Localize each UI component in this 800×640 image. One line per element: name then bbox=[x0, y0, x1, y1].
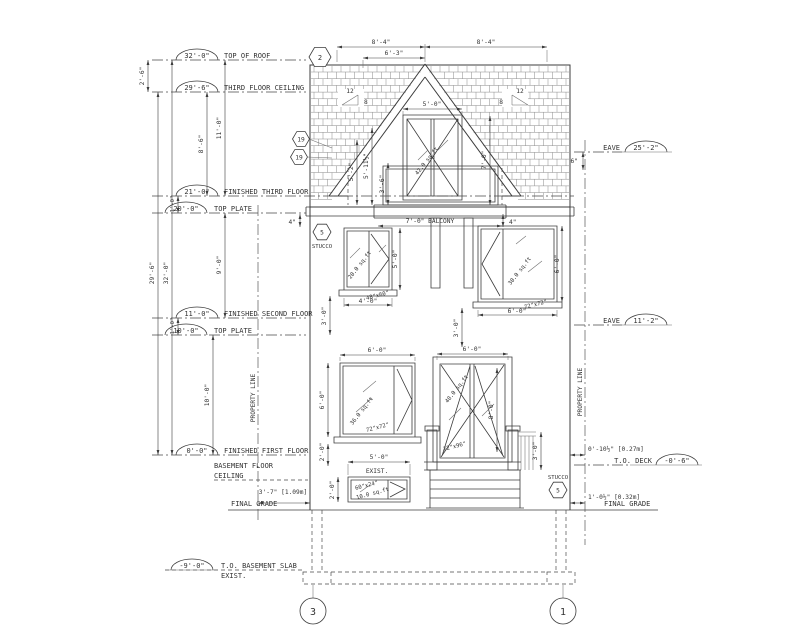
overhang-right-text: 4" bbox=[509, 219, 516, 226]
slope-run-right-text: 12 bbox=[516, 88, 524, 95]
keynote-19b-text: 19 bbox=[295, 155, 303, 162]
keynote-5-left-text: 5 bbox=[320, 230, 324, 237]
grid-1-text: 1 bbox=[560, 607, 566, 618]
deck-label: T.O. DECK bbox=[614, 457, 653, 465]
level-plate2-label: TOP PLATE bbox=[214, 327, 252, 335]
level-third-elev: 21'-0" bbox=[184, 188, 209, 196]
door-height-text: 8'-0" bbox=[488, 401, 495, 420]
win2r-height-text: 6'-0" bbox=[554, 255, 561, 274]
dim-dormer-h2-text: 5'-11½" bbox=[362, 153, 370, 179]
stucco-left-label: STUCCO bbox=[312, 244, 333, 250]
win2r-width-text: 6'-0" bbox=[508, 308, 527, 315]
offset-left-text: 3'-7" [1.09m] bbox=[259, 489, 307, 496]
level-plate3-label: TOP PLATE bbox=[214, 205, 252, 213]
level-ceiling3-elev: 29'-6" bbox=[184, 84, 209, 92]
door-width-text: 6'-0" bbox=[463, 346, 482, 353]
stoop-and-steps bbox=[424, 462, 524, 508]
win2l-sill-text: 3'-0" bbox=[321, 307, 328, 326]
dim-balcony-rail-text: 3'-6" bbox=[379, 175, 386, 194]
level-roof-elev: 32'-0" bbox=[184, 52, 209, 60]
eave-lower-label: EAVE bbox=[603, 317, 620, 325]
bwin-width-text: 5'-0" bbox=[370, 454, 389, 461]
extension-lines bbox=[337, 44, 557, 475]
win2r-size-text: 72"x72" bbox=[524, 299, 548, 311]
dim-roof-third-text: 11'-0" bbox=[216, 117, 223, 139]
offset-deck-text: 0'-10½" [0.27m] bbox=[588, 445, 644, 453]
win2l-width-text: 4'-0" bbox=[359, 298, 378, 305]
level-first-elev: 0'-0" bbox=[186, 447, 207, 455]
level-bsmt-ceiling-label2: CEILING bbox=[214, 472, 244, 480]
dormer-wall-lines bbox=[348, 168, 502, 205]
elevation-svg: 32'-0" TOP OF ROOF 29'-6" THIRD FLOOR CE… bbox=[0, 0, 800, 640]
dim-plate-lower-text: 1'-0" bbox=[170, 318, 176, 335]
level-second-label: FINISHED SECOND FLOOR bbox=[224, 310, 313, 318]
dim-third-text: 8'-6" bbox=[198, 135, 205, 154]
property-line-right-label: PROPERTY LINE bbox=[577, 368, 584, 417]
eave-lower-elev: 11'-2" bbox=[633, 317, 658, 325]
balcony-railing bbox=[383, 166, 498, 205]
balcony-posts bbox=[431, 218, 473, 288]
right-leaders bbox=[574, 152, 630, 465]
win1l-size-text: 72"x72" bbox=[366, 422, 390, 434]
dim-balcony-text: 7'-0" BALCONY bbox=[406, 218, 455, 225]
level-roof-label: TOP OF ROOF bbox=[224, 52, 270, 60]
keynote-19a-text: 19 bbox=[297, 137, 305, 144]
door-area-text: 48.0 sq.ft bbox=[444, 374, 469, 404]
dim-dormer-h1-text: 5'-2" bbox=[348, 163, 355, 182]
dim-roof-gap-text: 2'-6" bbox=[139, 67, 146, 86]
win1l-width-text: 6'-0" bbox=[368, 347, 387, 354]
win1l-area-text: 36.0 sq.ft bbox=[349, 396, 374, 426]
keynote-2-text: 2 bbox=[318, 54, 322, 62]
property-lines bbox=[258, 140, 585, 545]
eave-upper-label: EAVE bbox=[603, 144, 620, 152]
slope-rise-right-text: 8 bbox=[499, 99, 503, 106]
door-rail-text: 3'-0" bbox=[532, 442, 539, 461]
win1l-sill-text: 2'-0" bbox=[319, 443, 326, 462]
slope-run-left-text: 12 bbox=[346, 88, 354, 95]
dim-second-text: 9'-0" bbox=[216, 256, 223, 275]
dim-total-text: 32'-0" bbox=[163, 262, 170, 284]
level-ceiling3-label: THIRD FLOOR CEILING bbox=[224, 84, 304, 92]
porch-posts bbox=[425, 426, 520, 470]
window-2f-left bbox=[339, 228, 397, 296]
win2l-height-text: 5'-0" bbox=[392, 250, 399, 269]
slope-marker-backing-right bbox=[502, 89, 528, 107]
offset-grade-text: 1'-0½" [0.32m] bbox=[588, 493, 640, 501]
keynote-5-right-text: 5 bbox=[556, 488, 560, 495]
deck-elev: -0'-6" bbox=[664, 457, 689, 465]
gable-outline bbox=[329, 64, 521, 196]
slope-rise-left-text: 8 bbox=[364, 99, 368, 106]
level-slab-label2: EXIST. bbox=[221, 572, 246, 580]
dim-roof-right-text: 8'-4" bbox=[477, 39, 496, 46]
final-grade-right-label: FINAL GRADE bbox=[604, 500, 650, 508]
offset-eave-text: 6" bbox=[571, 158, 578, 165]
dim-dormer-width-text: 5'-0" bbox=[423, 101, 442, 108]
dim-ceiling-first-text: 29'-6" bbox=[149, 262, 156, 284]
level-bsmt-ceiling-label: BASEMENT FLOOR bbox=[214, 462, 274, 470]
eave-upper-elev: 25'-2" bbox=[633, 144, 658, 152]
dim-first-text: 10'-0" bbox=[204, 384, 211, 406]
dim-plate-upper-text: 1'-0" bbox=[170, 196, 176, 213]
keynote-19-leaders bbox=[307, 139, 332, 158]
bwin-height-text: 2'-0" bbox=[329, 481, 336, 500]
grid-3-text: 3 bbox=[310, 607, 316, 618]
dim-dormer-height-text: 7'-0" bbox=[481, 151, 488, 170]
bwin-exist-text: EXIST. bbox=[366, 468, 388, 475]
final-grade-left-label: FINAL GRADE bbox=[231, 500, 277, 508]
property-line-left-label: PROPERTY LINE bbox=[250, 374, 257, 423]
level-slab-elev: -9'-0" bbox=[179, 562, 204, 570]
level-second-elev: 11'-0" bbox=[184, 310, 209, 318]
win1l-height-text: 6'-0" bbox=[319, 391, 326, 410]
stucco-right-label: STUCCO bbox=[548, 475, 569, 481]
level-third-label: FINISHED THIRD FLOOR bbox=[224, 188, 309, 196]
win2r-sill-text: 3'-0" bbox=[453, 319, 460, 338]
foundation-walls bbox=[303, 510, 575, 584]
dim-roof-left-text: 8'-4" bbox=[372, 39, 391, 46]
level-first-label: FINISHED FIRST FLOOR bbox=[224, 447, 309, 455]
eave-fascia bbox=[306, 207, 574, 216]
level-slab-label: T.O. BASEMENT SLAB bbox=[221, 562, 297, 570]
elevation-drawing: 32'-0" TOP OF ROOF 29'-6" THIRD FLOOR CE… bbox=[0, 0, 800, 640]
dim-roof-inner-text: 6'-3" bbox=[385, 50, 404, 57]
grid-leaders bbox=[313, 585, 563, 598]
window-2f-right bbox=[473, 226, 562, 308]
overhang-left-text: 4" bbox=[289, 219, 296, 226]
